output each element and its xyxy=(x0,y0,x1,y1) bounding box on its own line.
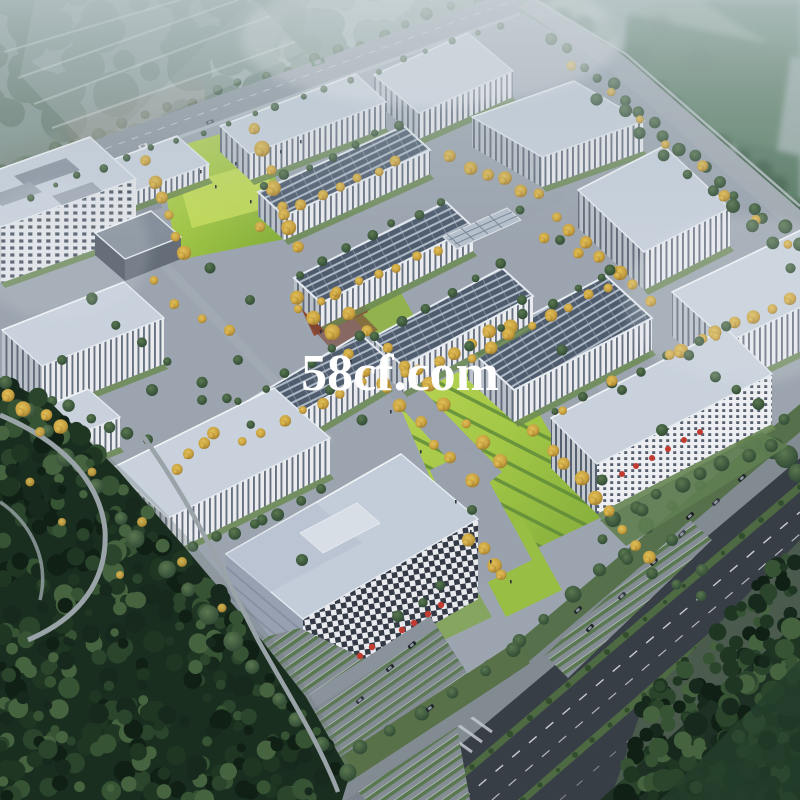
svg-text:58cf.com: 58cf.com xyxy=(301,345,499,402)
